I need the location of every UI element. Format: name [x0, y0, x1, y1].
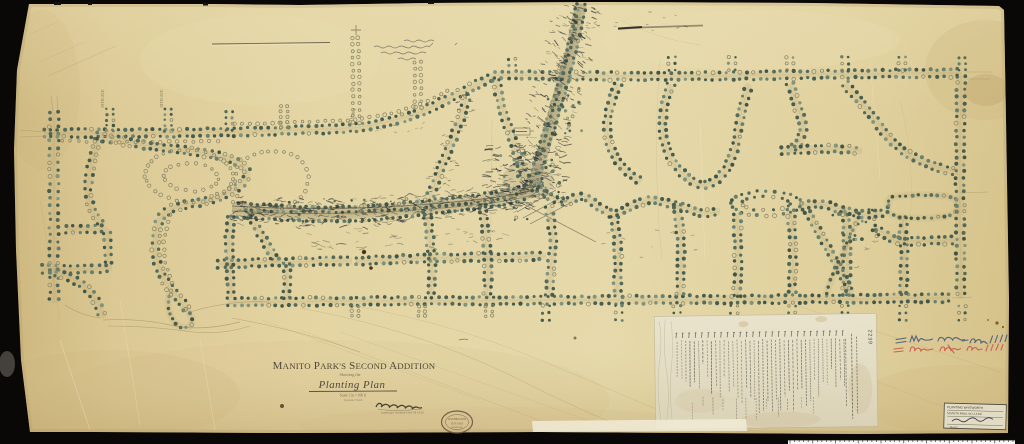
- svg-text:Showing the: Showing the: [339, 372, 360, 377]
- svg-text:Scale 1 in = 100 ft: Scale 1 in = 100 ft: [340, 394, 366, 398]
- svg-text:2239: 2239: [866, 329, 873, 344]
- svg-text:Landscape Architect Feb 28 19: Landscape Architect Feb 28 1910: [381, 411, 424, 415]
- svg-text:SPOKANE: SPOKANE: [451, 426, 463, 429]
- svg-text:Planting Plan: Planting Plan: [318, 379, 386, 391]
- svg-text:Spokane Wash: Spokane Wash: [344, 398, 363, 402]
- svg-text:MANITO PARK'S SECOND ADDITION: MANITO PARK'S SECOND ADDITION: [273, 360, 436, 372]
- svg-text:JUN 1910: JUN 1910: [451, 422, 464, 426]
- svg-text:19TH AVE: 19TH AVE: [100, 89, 105, 108]
- svg-text:18TH AVE: 18TH AVE: [159, 89, 164, 108]
- svg-text:No 83: No 83: [950, 425, 958, 429]
